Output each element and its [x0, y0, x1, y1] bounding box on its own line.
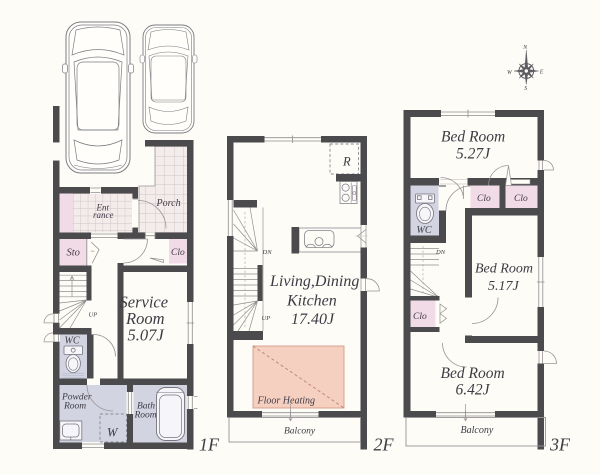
svg-text:5.07J: 5.07J: [128, 326, 165, 345]
svg-text:WC: WC: [417, 225, 432, 236]
svg-text:Bed Room: Bed Room: [441, 129, 505, 146]
svg-text:5.27J: 5.27J: [456, 146, 491, 163]
svg-text:Clo: Clo: [171, 248, 185, 258]
svg-text:Clo: Clo: [477, 194, 491, 204]
svg-text:UP: UP: [262, 315, 271, 322]
svg-text:Porch: Porch: [156, 198, 181, 209]
svg-text:5.17J: 5.17J: [488, 279, 520, 294]
svg-text:Balcony: Balcony: [461, 425, 494, 436]
svg-text:6.42J: 6.42J: [456, 382, 491, 399]
svg-text:17.40J: 17.40J: [291, 311, 335, 328]
svg-text:Kitchen: Kitchen: [286, 293, 337, 310]
svg-text:Room: Room: [63, 402, 86, 412]
svg-text:Sto: Sto: [67, 248, 80, 259]
svg-text:Balcony: Balcony: [284, 427, 316, 437]
svg-text:DN: DN: [435, 249, 446, 256]
svg-text:E: E: [539, 70, 544, 76]
svg-text:Living,Dining: Living,Dining: [269, 273, 359, 290]
svg-text:WC: WC: [65, 336, 80, 347]
svg-text:UP: UP: [89, 312, 98, 319]
svg-text:2F: 2F: [374, 435, 395, 455]
svg-text:1F: 1F: [199, 435, 220, 455]
svg-text:Clo: Clo: [514, 194, 528, 204]
svg-text:Bed Room: Bed Room: [441, 365, 505, 382]
svg-text:Floor Heating: Floor Heating: [257, 396, 316, 407]
svg-text:S: S: [524, 86, 527, 92]
svg-text:Bed Room: Bed Room: [475, 262, 533, 277]
svg-text:3F: 3F: [549, 435, 571, 455]
svg-text:rance: rance: [93, 210, 114, 220]
svg-text:DN: DN: [262, 249, 273, 256]
svg-text:W: W: [107, 426, 119, 440]
svg-text:Clo: Clo: [413, 312, 427, 322]
svg-text:Room: Room: [134, 411, 157, 421]
svg-text:R: R: [342, 155, 351, 169]
